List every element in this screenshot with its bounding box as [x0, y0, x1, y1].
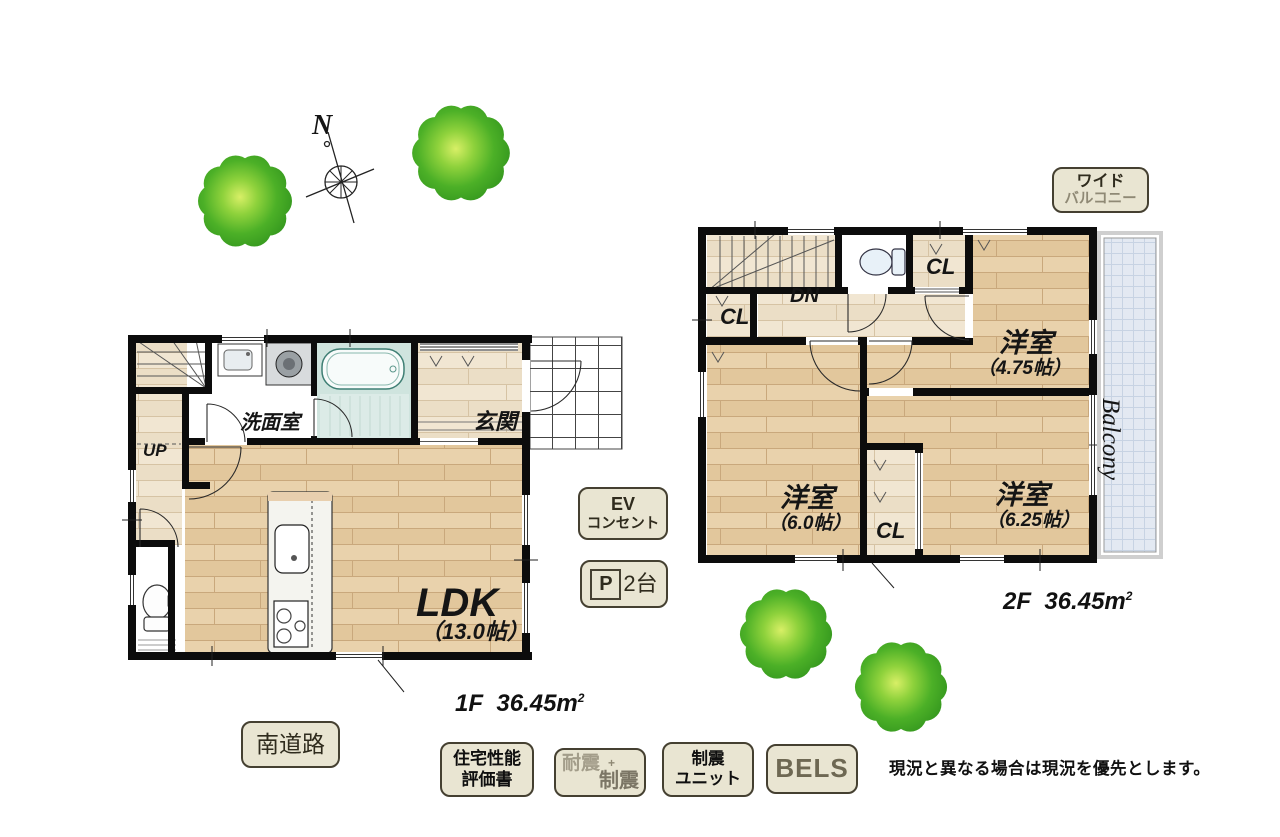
- earthquake-line2: 制震: [599, 769, 639, 793]
- disclaimer-text: 現況と異なる場合は現況を優先とします。: [889, 755, 1210, 779]
- floor1-area-label: 1F 36.45m2: [455, 690, 584, 718]
- parking-p-icon: P: [590, 569, 621, 600]
- stairs-dn-label: DN: [790, 286, 819, 306]
- floor1-area-sup: 2: [578, 691, 585, 705]
- compass-north-label: N: [312, 112, 332, 140]
- earthquake-line1: 耐震: [562, 753, 600, 776]
- parking-count: 2台: [623, 571, 657, 597]
- parking-badge: P 2台: [580, 560, 668, 608]
- room-625-size-label: （6.25帖）: [986, 511, 1080, 530]
- cl-left-label: CL: [720, 306, 749, 328]
- room-475-size-label: （4.75帖）: [977, 359, 1071, 378]
- entrance-porch: [530, 337, 622, 449]
- ev-line1: EV: [611, 494, 635, 516]
- room-475-label: 洋室: [999, 330, 1053, 357]
- ev-line2: コンセント: [587, 516, 660, 533]
- bels-badge: BELS: [766, 744, 858, 794]
- cl-bottom-label: CL: [876, 520, 905, 542]
- floor2-area-sup: 2: [1126, 589, 1133, 603]
- ev-outlet-badge: EV コンセント: [578, 487, 668, 540]
- housing-performance-line2: 評価書: [462, 770, 513, 790]
- floor2-area-value: 36.45m: [1044, 588, 1125, 615]
- earthquake-badge: 耐震 + 制震: [554, 748, 646, 797]
- toilet-2f: [860, 249, 905, 275]
- washroom-label: 洗面室: [240, 413, 300, 433]
- stairs-up-label: UP: [143, 442, 167, 459]
- ldk-label: LDK: [416, 583, 498, 623]
- entrance-label: 玄関: [473, 411, 517, 433]
- south-road-badge: 南道路: [241, 721, 340, 768]
- floor1-area-value: 36.45m: [496, 690, 577, 717]
- damper-unit-line1: 制震: [692, 750, 725, 770]
- floor-plan-page: N UP 洗面室 玄関 LDK （13.0帖） DN CL CL CL 洋室 （…: [0, 0, 1280, 837]
- ldk-size-label: （13.0帖）: [420, 621, 529, 643]
- wide-balcony-line2: バルコニー: [1064, 191, 1136, 208]
- wide-balcony-line1: ワイド: [1076, 172, 1124, 191]
- wide-balcony-badge: ワイド バルコニー: [1052, 167, 1149, 213]
- bels-label: BELS: [775, 753, 848, 784]
- corridor-1f: [135, 392, 182, 545]
- washbasin: [218, 344, 262, 376]
- compass-icon: [306, 132, 374, 223]
- room-60-label: 洋室: [780, 485, 834, 512]
- south-road-label: 南道路: [256, 731, 325, 759]
- room-625-label: 洋室: [995, 482, 1049, 509]
- damper-unit-badge: 制震 ユニット: [662, 742, 754, 797]
- floor1-plan: [122, 329, 622, 692]
- floor-plan-graphics: [0, 0, 1280, 837]
- kitchen-counter: [268, 492, 332, 653]
- washing-machine: [266, 343, 312, 385]
- cl-top-label: CL: [926, 256, 955, 278]
- housing-performance-badge: 住宅性能 評価書: [440, 742, 534, 797]
- floor2-area-floor: 2F: [1003, 588, 1031, 615]
- floor1-area-floor: 1F: [455, 690, 483, 717]
- damper-unit-line2: ユニット: [675, 770, 741, 790]
- balcony-label: Balcony: [1098, 398, 1123, 558]
- room-60-size-label: （6.0帖）: [768, 514, 851, 533]
- floor2-area-label: 2F 36.45m2: [1003, 588, 1132, 616]
- housing-performance-line1: 住宅性能: [453, 749, 521, 769]
